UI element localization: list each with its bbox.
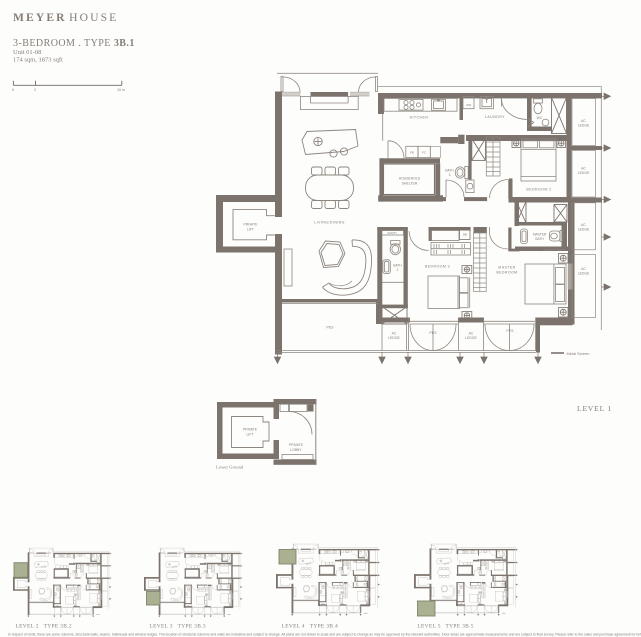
svg-text:SHELTER: SHELTER [402,182,418,186]
svg-text:LIFT: LIFT [247,433,254,437]
svg-text:LEVEL 1: LEVEL 1 [577,404,612,413]
svg-text:LOBBY: LOBBY [290,448,302,452]
svg-text:2: 2 [397,268,399,272]
svg-text:AC: AC [392,332,397,336]
svg-text:TYPE 3B.4: TYPE 3B.4 [310,624,338,630]
svg-text:LEVEL 5: LEVEL 5 [417,624,440,630]
svg-text:BATH: BATH [393,264,402,268]
svg-text:PES: PES [506,329,514,333]
svg-text:PRIVATE: PRIVATE [243,223,258,227]
svg-text:PRIVATE: PRIVATE [243,428,258,432]
svg-text:LEDGE: LEDGE [388,336,400,340]
svg-text:LEDGE: LEDGE [578,228,590,232]
svg-text:DB: DB [463,233,467,237]
svg-text:LAUNDRY: LAUNDRY [485,115,505,119]
svg-text:Metal Screen: Metal Screen [567,351,590,356]
svg-text:LEVEL 4: LEVEL 4 [282,624,305,630]
svg-text:AC: AC [581,223,586,227]
svg-text:LEDGE: LEDGE [578,272,590,276]
svg-text:PES: PES [429,331,437,335]
svg-text:TYPE 3B.3: TYPE 3B.3 [178,624,206,630]
svg-text:AC: AC [581,167,586,171]
svg-text:2: 2 [34,88,36,92]
svg-text:FC: FC [422,151,427,155]
svg-text:LEDGE: LEDGE [465,336,477,340]
svg-text:LEVEL 3: LEVEL 3 [150,624,173,630]
svg-text:PRIVATE: PRIVATE [289,443,304,447]
svg-text:MASTER: MASTER [533,233,547,237]
svg-text:BEDROOM 3: BEDROOM 3 [425,265,450,269]
svg-text:WC: WC [537,116,543,120]
svg-text:LEVEL 2: LEVEL 2 [16,624,39,630]
svg-text:AC: AC [581,119,586,123]
svg-text:In respect of Units, there are: In respect of Units, there are some colu… [8,632,641,636]
svg-text:HOUSEHOLD: HOUSEHOLD [399,177,421,181]
svg-text:BEDROOM 2: BEDROOM 2 [526,188,551,192]
svg-text:MASTER: MASTER [498,266,515,270]
svg-text:WD: WD [466,103,472,107]
svg-text:Lower Ground: Lower Ground [216,465,244,470]
svg-text:TYPE 3B.2: TYPE 3B.2 [44,624,72,630]
svg-text:174 sqm, 1873 sqft: 174 sqm, 1873 sqft [13,57,63,64]
svg-text:LEDGE: LEDGE [578,124,590,128]
svg-text:3-BEDROOM . TYPE 3B.1: 3-BEDROOM . TYPE 3B.1 [13,38,135,49]
svg-text:FB: FB [410,151,414,155]
svg-text:LIFT: LIFT [247,228,254,232]
svg-text:BEDROOM: BEDROOM [496,271,517,275]
svg-text:KITCHEN: KITCHEN [410,116,429,120]
svg-text:10 m: 10 m [117,88,125,92]
svg-text:AC: AC [581,267,586,271]
svg-text:LIVING/DINING: LIVING/DINING [314,221,345,225]
svg-text:AC: AC [469,332,474,336]
svg-text:0: 0 [12,88,14,92]
svg-text:TYPE 3B.5: TYPE 3B.5 [446,624,474,630]
svg-text:MEYERHOUSE: MEYERHOUSE [13,11,118,24]
svg-text:3: 3 [449,173,451,177]
svg-text:LEDGE: LEDGE [578,171,590,175]
svg-text:Unit 01-08: Unit 01-08 [13,49,41,56]
svg-text:VANITY: VANITY [387,231,397,235]
svg-text:BATH: BATH [535,237,544,241]
svg-text:BATH: BATH [445,169,454,173]
svg-text:PES: PES [326,326,334,330]
